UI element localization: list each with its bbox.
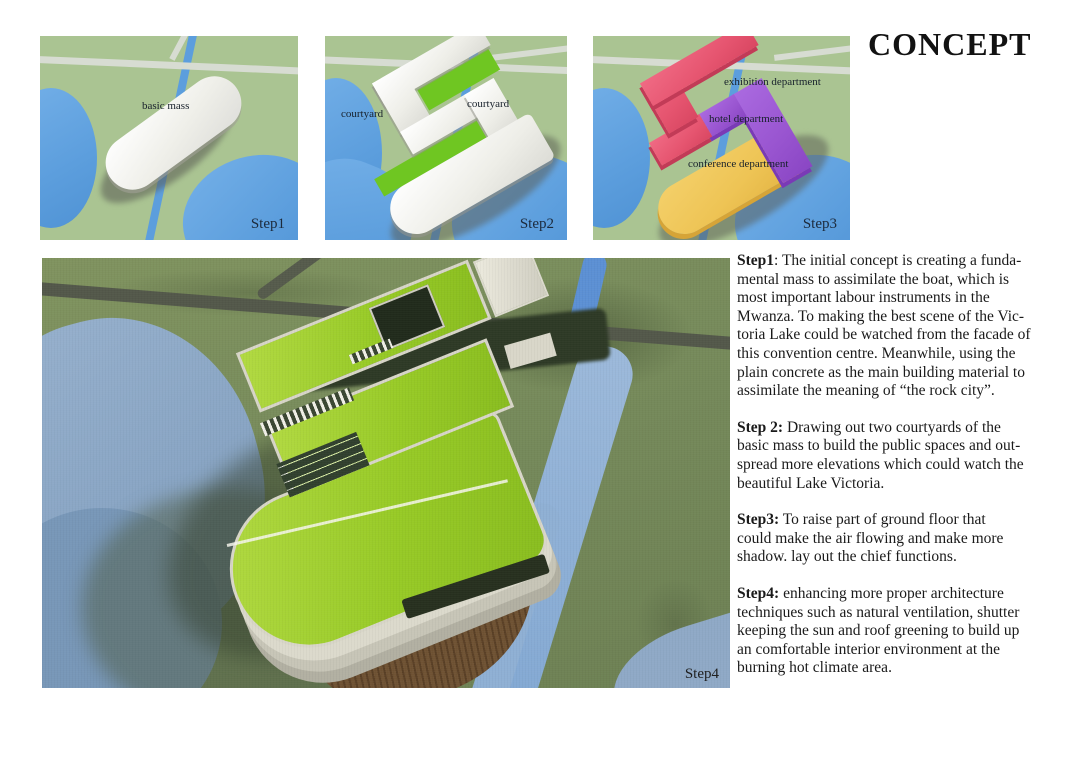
exhibition-label: exhibition department [724, 76, 821, 88]
step1-description-label: Step1 [737, 252, 774, 269]
basic-mass-label: basic mass [142, 100, 189, 112]
road-shape [256, 258, 337, 301]
conference-label: conference department [688, 158, 788, 170]
step3-description: Step3: To raise part of ground floor tha… [737, 511, 1049, 567]
step-descriptions: Step1: The initial concept is creating a… [737, 252, 1049, 696]
hotel-label: hotel department [709, 113, 783, 125]
step1-description: Step1: The initial concept is creating a… [737, 252, 1049, 401]
step3-label: Step3 [803, 216, 837, 233]
lake-shape [40, 88, 97, 228]
courtyard-left-label: courtyard [341, 108, 383, 120]
step4-label: Step4 [685, 666, 719, 683]
step4-description-text: enhancing more proper architecture techn… [737, 585, 1019, 676]
concept-board: CONCEPT basic mass Step1 courtyard [0, 0, 1080, 762]
road-shape [774, 45, 850, 61]
step4-description-label: Step4: [737, 585, 779, 602]
step1-diagram-panel: basic mass Step1 [40, 36, 298, 240]
step2-diagram-panel: courtyard courtyard Step2 [325, 36, 567, 240]
page-title: CONCEPT [868, 26, 1031, 63]
step2-description: Step 2: Drawing out two courtyards of th… [737, 419, 1049, 493]
courtyard-right-label: courtyard [467, 98, 509, 110]
step2-label: Step2 [520, 216, 554, 233]
step4-aerial-render: Step4 [42, 258, 730, 688]
walkway-ramp [504, 333, 557, 369]
step3-description-label: Step3: [737, 511, 779, 528]
step4-description: Step4: enhancing more proper architectur… [737, 585, 1049, 678]
step1-label: Step1 [251, 216, 285, 233]
road-shape [40, 56, 298, 75]
step3-diagram-panel: exhibition department hotel department c… [593, 36, 850, 240]
step1-description-text: : The initial concept is creating a fund… [737, 252, 1031, 399]
step2-description-label: Step 2: [737, 419, 783, 436]
